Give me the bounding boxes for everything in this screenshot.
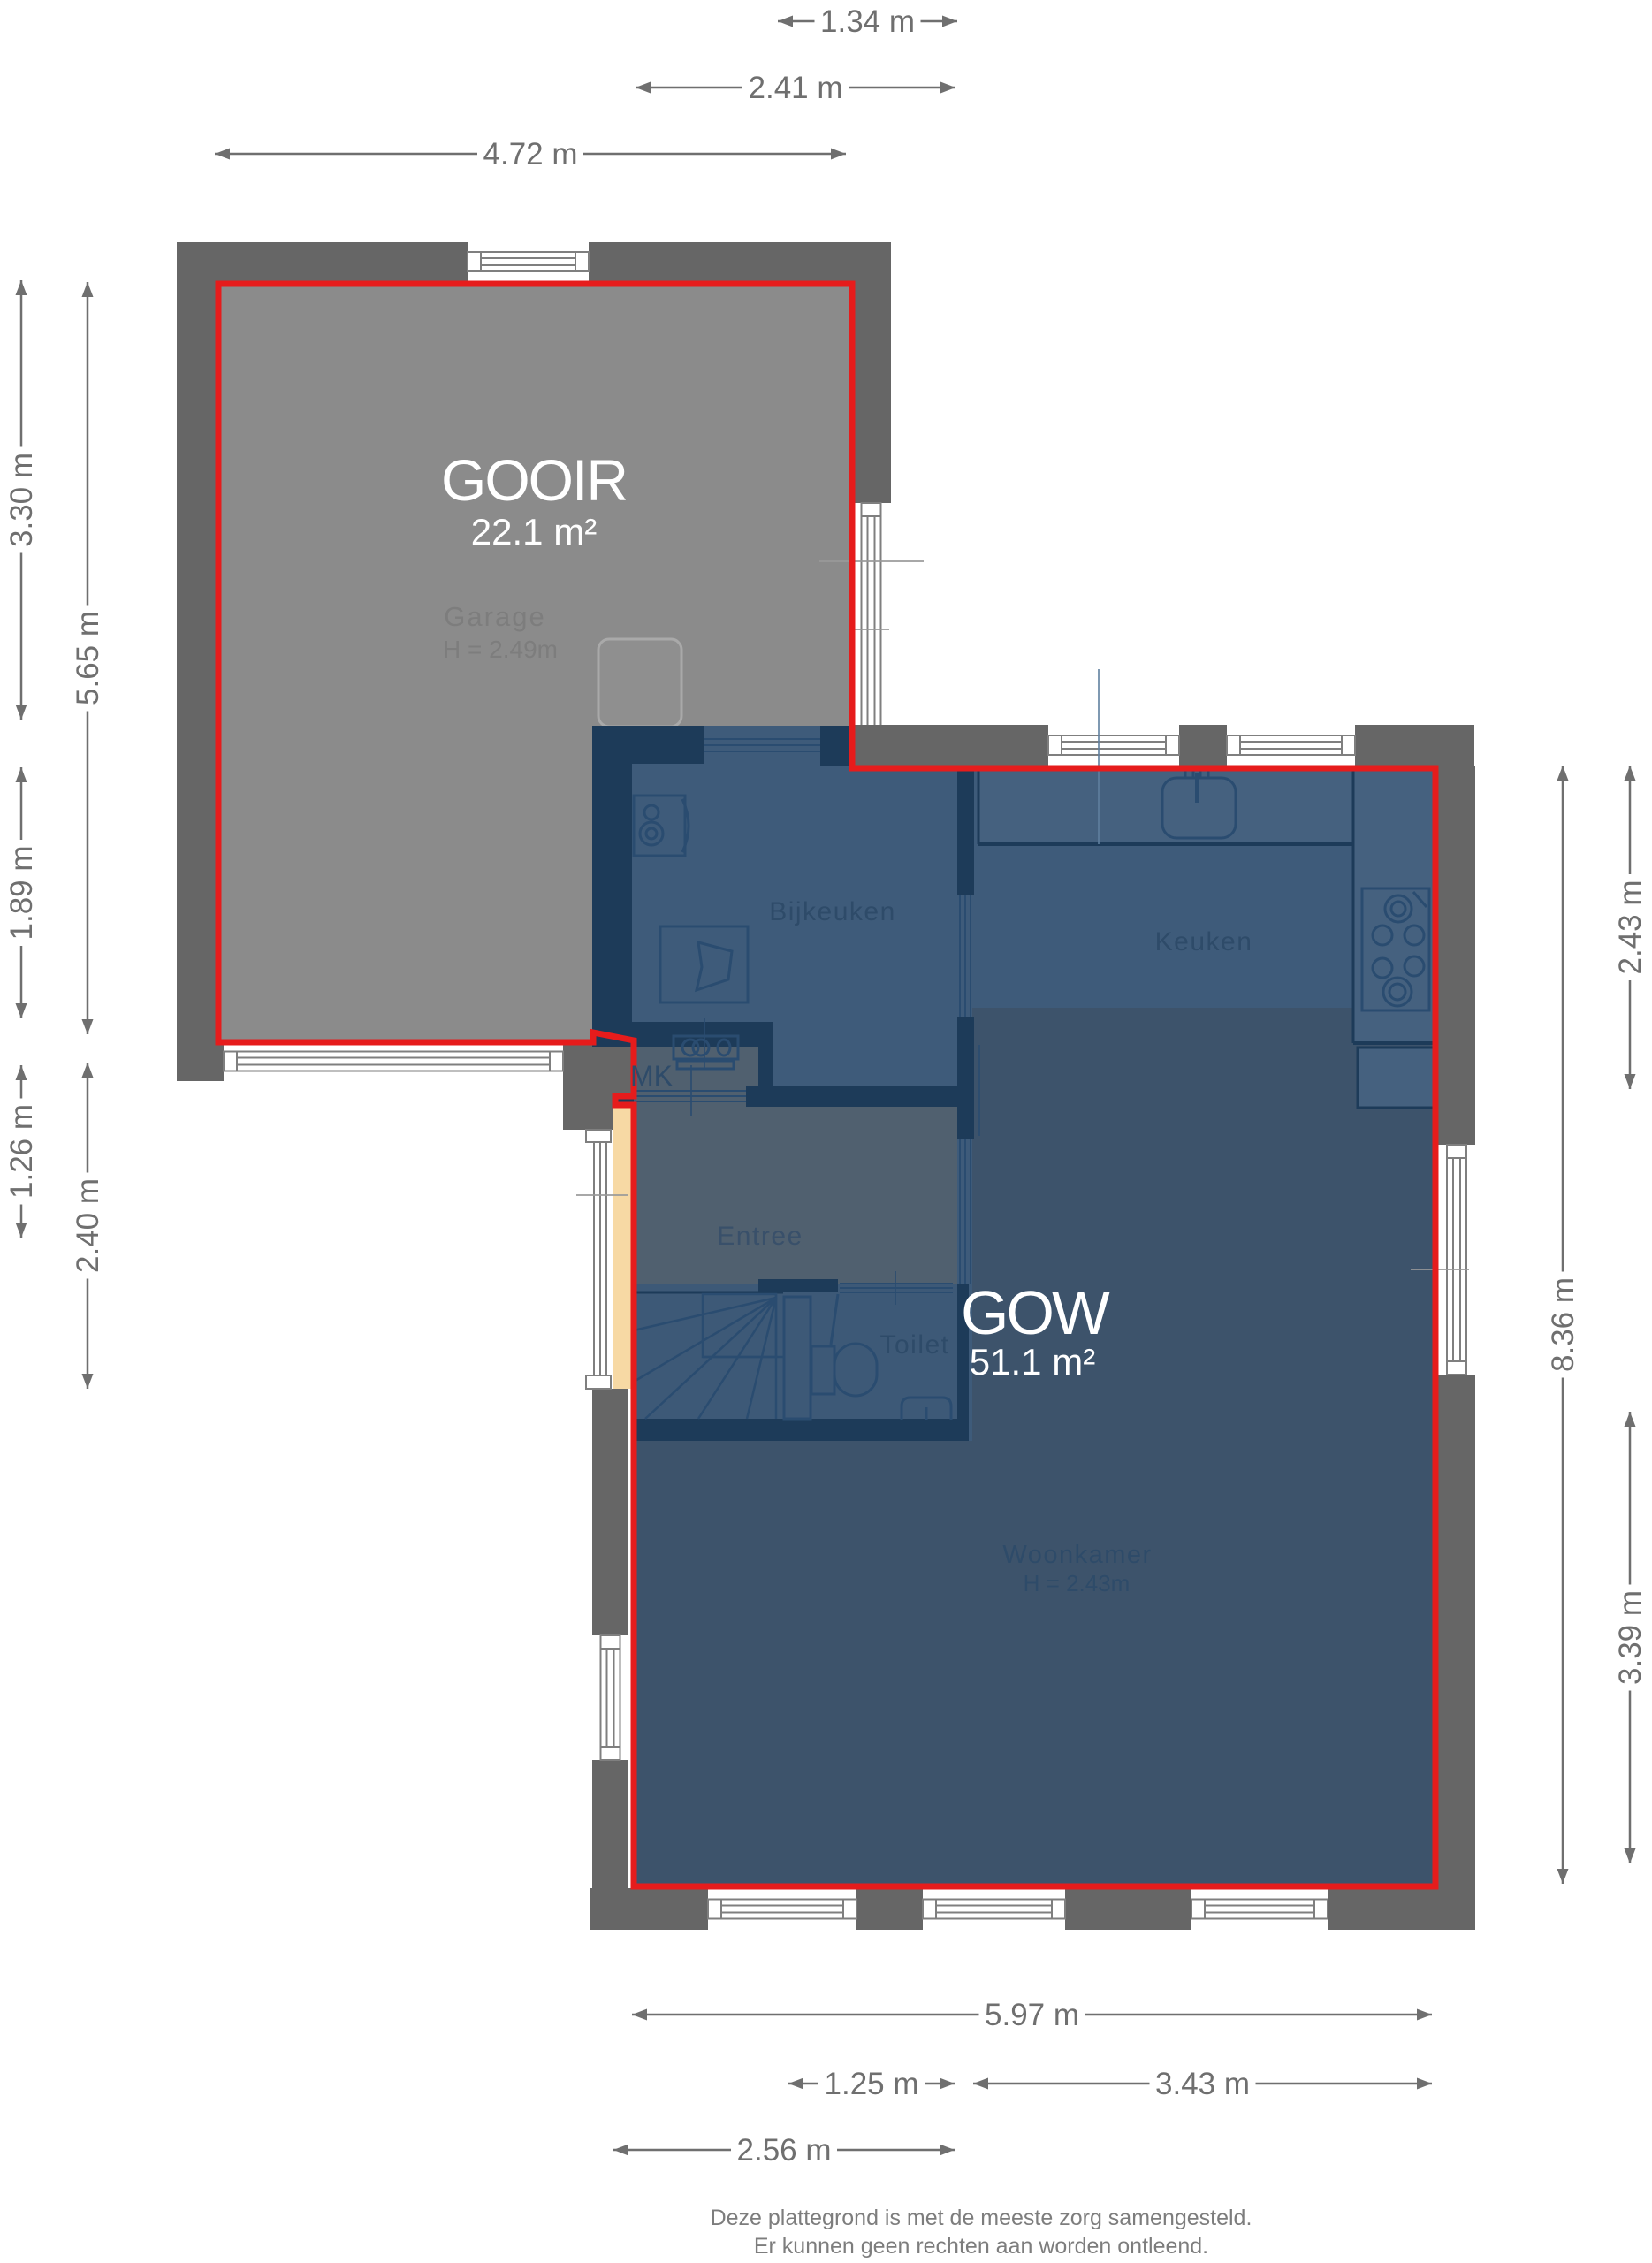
svg-text:Deze plattegrond is met de mee: Deze plattegrond is met de meeste zorg s…	[711, 2206, 1252, 2230]
svg-text:Er kunnen geen rechten aan wor: Er kunnen geen rechten aan worden ontlee…	[754, 2234, 1208, 2259]
svg-text:Entree: Entree	[717, 1222, 803, 1251]
svg-text:22.1 m²: 22.1 m²	[471, 511, 597, 552]
svg-text:Bijkeuken: Bijkeuken	[769, 897, 896, 926]
svg-text:1.34 m: 1.34 m	[820, 4, 915, 39]
svg-text:4.72 m: 4.72 m	[483, 137, 578, 171]
svg-text:1.25 m: 1.25 m	[825, 2067, 919, 2101]
svg-text:H = 2.43m: H = 2.43m	[1024, 1570, 1131, 1596]
svg-text:1.26 m: 1.26 m	[4, 1104, 39, 1199]
svg-text:1.89 m: 1.89 m	[4, 846, 39, 941]
svg-text:2.56 m: 2.56 m	[737, 2133, 832, 2168]
svg-text:2.41 m: 2.41 m	[749, 71, 843, 105]
svg-text:5.65 m: 5.65 m	[71, 611, 105, 705]
svg-text:5.97 m: 5.97 m	[985, 1998, 1079, 2032]
svg-text:51.1 m²: 51.1 m²	[970, 1341, 1095, 1383]
svg-text:3.43 m: 3.43 m	[1155, 2067, 1250, 2101]
svg-text:Toilet: Toilet	[879, 1330, 949, 1360]
svg-text:2.43 m: 2.43 m	[1613, 880, 1648, 975]
svg-text:2.40 m: 2.40 m	[71, 1178, 105, 1273]
svg-text:Garage: Garage	[444, 601, 545, 632]
svg-text:3.39 m: 3.39 m	[1613, 1590, 1648, 1685]
svg-text:Keuken: Keuken	[1155, 927, 1253, 956]
svg-text:H = 2.49m: H = 2.49m	[443, 636, 558, 663]
svg-text:MK: MK	[630, 1060, 673, 1092]
svg-text:GOW: GOW	[961, 1278, 1110, 1347]
svg-text:Woonkamer: Woonkamer	[1002, 1541, 1152, 1569]
svg-text:8.36 m: 8.36 m	[1546, 1277, 1580, 1372]
svg-text:GOOIR: GOOIR	[441, 447, 627, 513]
svg-text:3.30 m: 3.30 m	[4, 453, 39, 547]
